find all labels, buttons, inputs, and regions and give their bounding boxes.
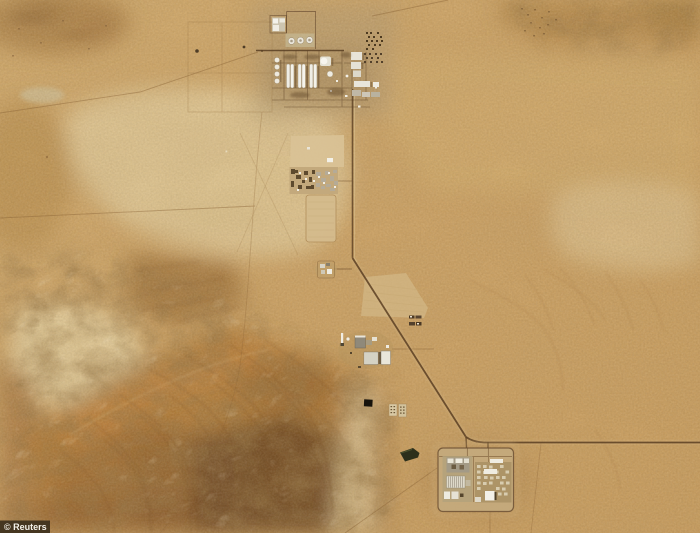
svg-text:© Reuters: © Reuters (4, 522, 47, 532)
